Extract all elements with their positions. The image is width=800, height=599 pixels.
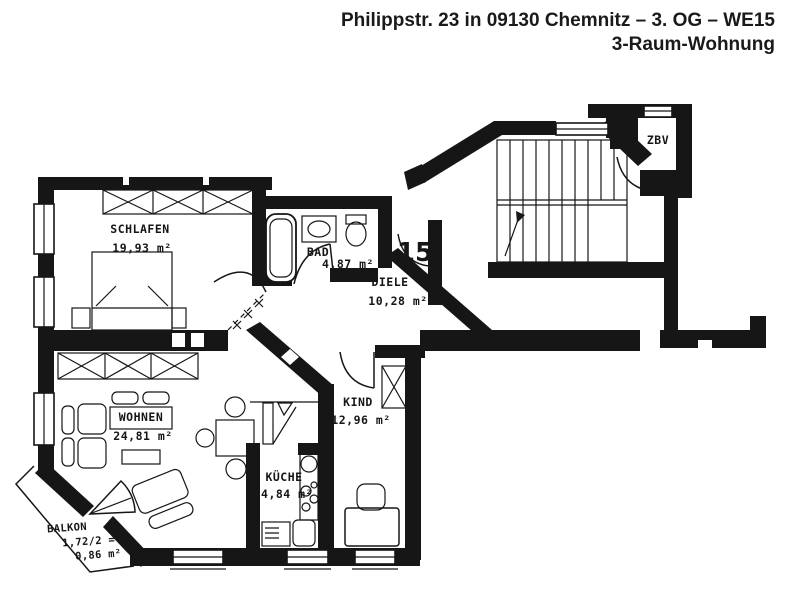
window-wohnen-bottom bbox=[170, 550, 226, 569]
stair-steps bbox=[497, 140, 627, 262]
window-stairwell bbox=[556, 123, 608, 135]
room-schlafen: SCHLAFEN 19,93 m² bbox=[110, 222, 171, 255]
balkon-name: BALKON bbox=[47, 521, 87, 536]
washbasin bbox=[302, 216, 336, 242]
coffee-table bbox=[122, 450, 160, 464]
floorplan-page: Philippstr. 23 in 09130 Chemnitz – 3. OG… bbox=[0, 0, 800, 599]
bed bbox=[72, 252, 186, 330]
furniture bbox=[16, 190, 406, 572]
balkon-calc: 1,72/2 = bbox=[62, 534, 116, 550]
title-line-1: Philippstr. 23 in 09130 Chemnitz – 3. OG… bbox=[341, 10, 775, 31]
schlafen-wardrobe bbox=[103, 190, 253, 214]
title-line-2: 3-Raum-Wohnung bbox=[612, 34, 775, 55]
kind-name: KIND bbox=[343, 395, 373, 409]
room-wohnen: WOHNEN 24,81 m² bbox=[113, 410, 172, 443]
kitchen-counter bbox=[300, 450, 318, 520]
wohnen-name: WOHNEN bbox=[119, 410, 164, 424]
bad-area: 4,87 m² bbox=[322, 257, 374, 271]
room-zbv: ZBV bbox=[647, 133, 669, 147]
desk bbox=[345, 484, 399, 546]
plan-title: Philippstr. 23 in 09130 Chemnitz – 3. OG… bbox=[341, 10, 775, 55]
zbv-name: ZBV bbox=[647, 133, 669, 147]
window-zbv bbox=[644, 106, 672, 117]
walls bbox=[35, 104, 766, 567]
wohnen-wardrobe bbox=[58, 353, 198, 379]
rug bbox=[130, 468, 196, 532]
schlafen-door bbox=[214, 272, 266, 330]
room-kueche: KÜCHE 4,84 m² bbox=[261, 469, 313, 501]
bathtub bbox=[266, 214, 296, 282]
apartment-number: 15 bbox=[397, 238, 433, 268]
wohnen-area: 24,81 m² bbox=[113, 429, 172, 443]
schlafen-name: SCHLAFEN bbox=[110, 222, 169, 236]
window-kind-bottom bbox=[352, 550, 398, 569]
balkon-area: 0,86 m² bbox=[75, 547, 122, 562]
window-kueche-bottom bbox=[284, 550, 331, 569]
diele-area: 10,28 m² bbox=[368, 294, 427, 308]
dining-set bbox=[196, 397, 254, 479]
stairwell bbox=[497, 140, 627, 262]
window-schlafen-2 bbox=[34, 277, 54, 327]
schlafen-area: 19,93 m² bbox=[112, 241, 171, 255]
toilet bbox=[346, 215, 366, 246]
armchairs bbox=[62, 404, 106, 468]
floorplan-drawing: Philippstr. 23 in 09130 Chemnitz – 3. OG… bbox=[0, 0, 800, 599]
kueche-area: 4,84 m² bbox=[261, 487, 313, 501]
kitchen-stove bbox=[262, 520, 315, 546]
kind-area: 12,96 m² bbox=[331, 413, 390, 427]
window-schlafen-1 bbox=[34, 204, 54, 254]
balcony-door-fan bbox=[90, 481, 135, 514]
room-bad: BAD 4,87 m² bbox=[307, 245, 374, 271]
diele-name: DIELE bbox=[371, 275, 408, 289]
kueche-door-leaf bbox=[250, 402, 318, 444]
kueche-name: KÜCHE bbox=[265, 469, 302, 484]
window-wohnen-left bbox=[34, 393, 54, 445]
kind-door bbox=[340, 352, 374, 388]
shaft-box bbox=[382, 366, 406, 408]
stair-direction-arrow bbox=[505, 211, 525, 256]
